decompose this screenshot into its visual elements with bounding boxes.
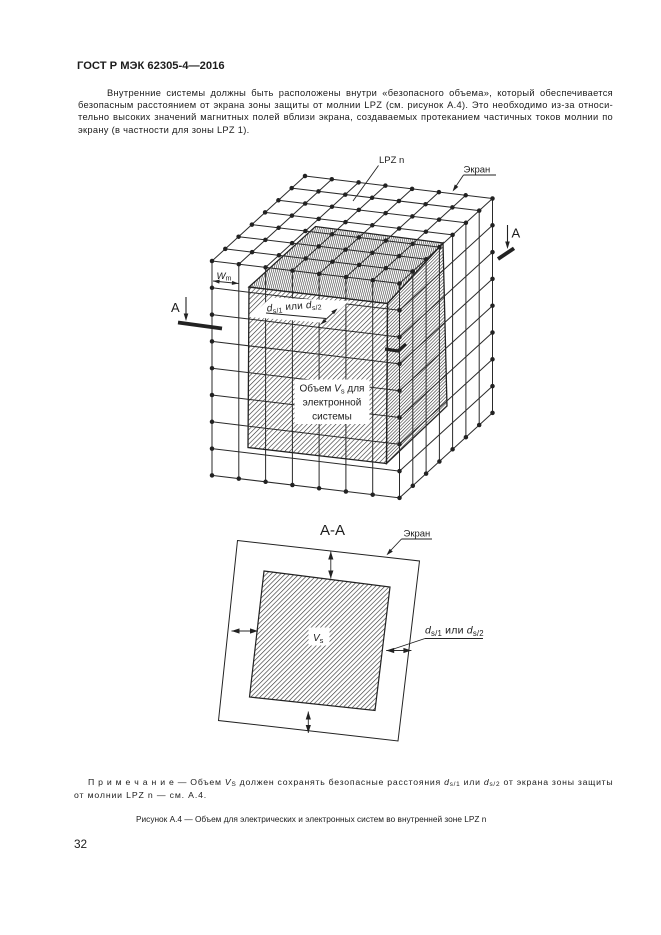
- svg-text:Экран: Экран: [464, 165, 491, 176]
- svg-text:LPZ n: LPZ n: [379, 155, 404, 166]
- svg-text:A: A: [512, 226, 521, 241]
- svg-text:Экран: Экран: [404, 529, 431, 540]
- svg-text:А-А: А-А: [320, 522, 345, 539]
- svg-text:A: A: [171, 300, 180, 315]
- svg-text:электронной: электронной: [303, 398, 362, 409]
- svg-text:Объем Vs для: Объем Vs для: [300, 383, 365, 396]
- svg-text:системы: системы: [312, 412, 352, 423]
- svg-text:ds/1 или ds/2: ds/1 или ds/2: [425, 625, 484, 638]
